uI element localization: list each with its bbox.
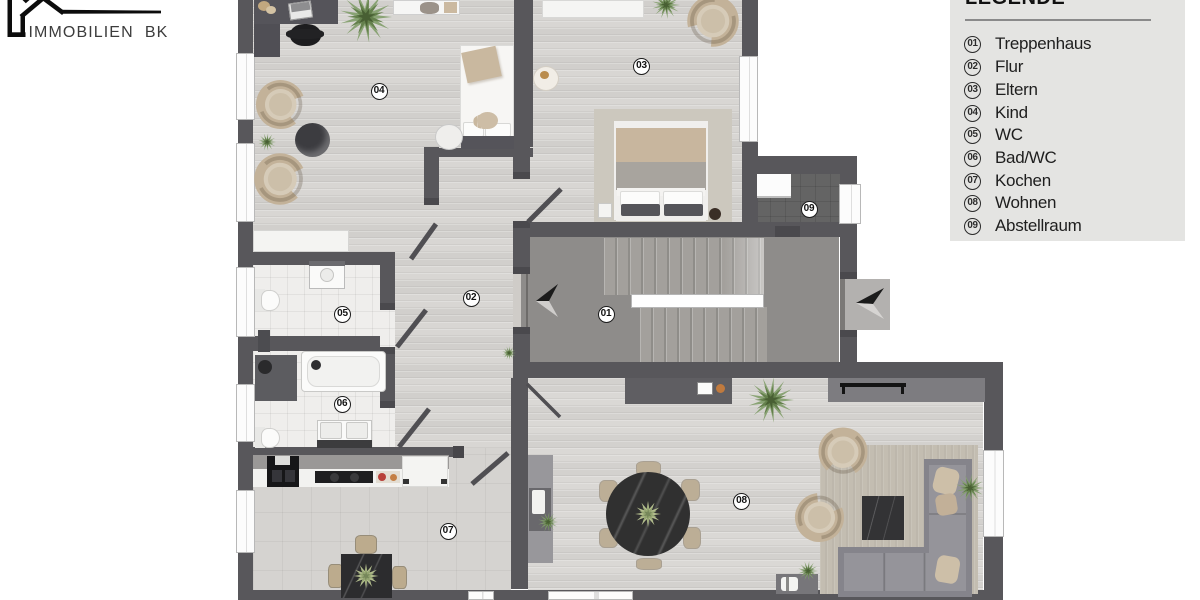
- svg-text:IMMOBILIEN BK: IMMOBILIEN BK: [29, 24, 169, 41]
